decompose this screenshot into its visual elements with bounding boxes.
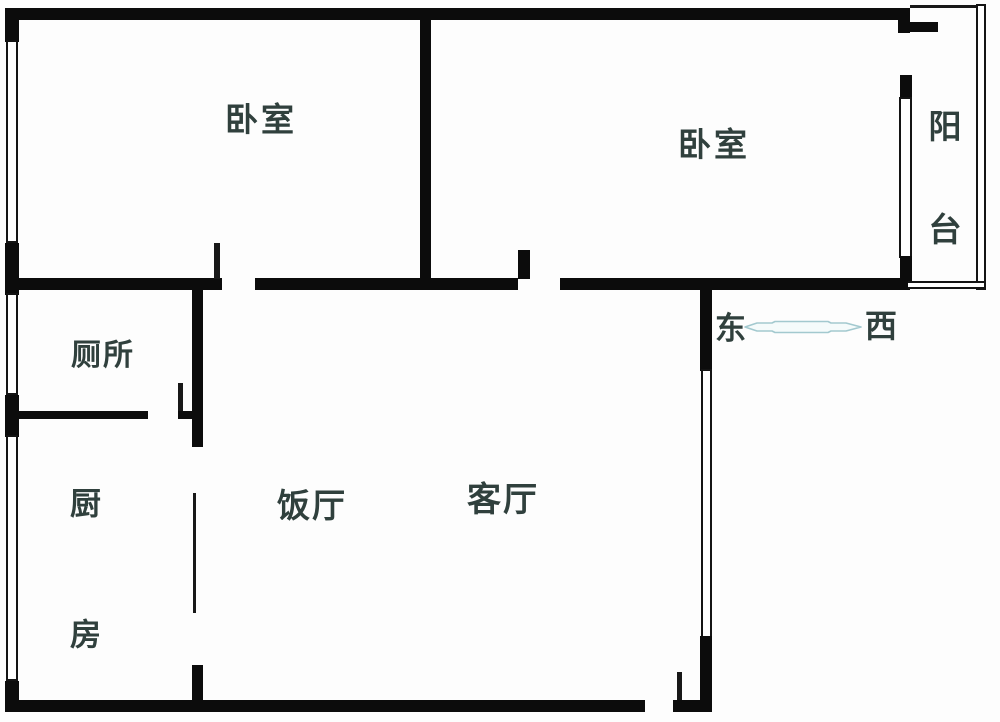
wall-hall-a — [12, 278, 222, 290]
window-toilet-left — [6, 293, 18, 395]
label-bedroom1: 卧室 — [225, 103, 297, 136]
window-bedroom1-left — [6, 40, 18, 243]
label-balcony: 阳台 — [926, 109, 959, 315]
wall-bedroom-divider — [420, 19, 431, 290]
east-west-arrow-icon — [744, 318, 864, 336]
line-kitchen-door — [193, 493, 196, 613]
label-toilet: 厕所 — [71, 341, 135, 371]
wall-left-top-corner — [5, 8, 19, 42]
wall-living-right-top — [700, 283, 712, 371]
wall-living-right-bottom — [700, 636, 712, 712]
label-bedroom2: 卧室 — [678, 128, 750, 161]
window-living-right — [701, 369, 712, 638]
wall-balcony-stub-upper — [900, 75, 912, 99]
jamb-toilet-door — [178, 383, 183, 414]
wall-top — [12, 8, 910, 20]
window-kitchen-left — [6, 435, 18, 681]
label-east: 东 — [715, 314, 746, 345]
window-balcony-right — [976, 4, 986, 290]
jamb-bedroom2-door — [518, 250, 530, 279]
wall-toilet-bottom-left — [12, 411, 148, 419]
window-bedroom2-balcony — [899, 97, 912, 258]
label-west: 西 — [865, 310, 897, 342]
wall-hall-c — [560, 278, 910, 290]
label-living: 客厅 — [467, 483, 539, 517]
jamb-bottom-door — [677, 672, 682, 700]
jamb-bedroom1-door — [214, 243, 220, 279]
wall-toilet-right — [192, 290, 203, 447]
wall-balcony-corner-h — [898, 22, 938, 32]
wall-hall-b — [255, 278, 518, 290]
label-dining: 饭厅 — [277, 489, 347, 522]
label-kitchen: 厨房 — [66, 487, 97, 722]
wall-kitchen-right-bottom — [192, 665, 203, 712]
line-balcony-top — [910, 5, 984, 8]
wall-bottom-left — [5, 700, 645, 712]
wall-toilet-bottom-right — [178, 411, 203, 419]
floor-plan: 卧室 卧室 阳台 厕所 厨房 饭厅 客厅 东 西 — [0, 0, 1000, 722]
